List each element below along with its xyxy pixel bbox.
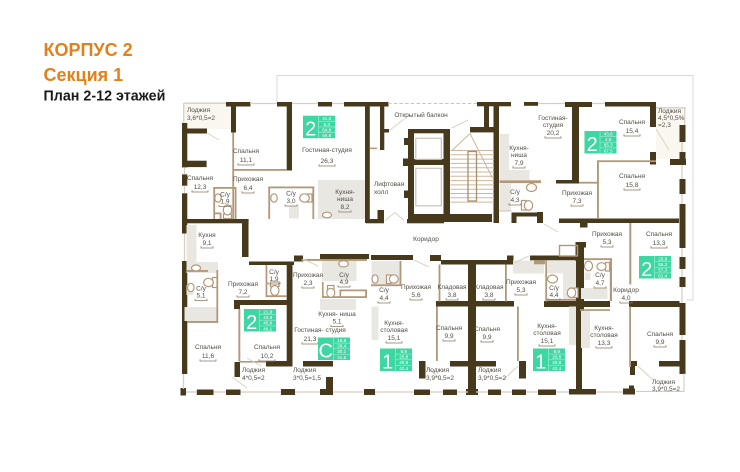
svg-text:Кладовая: Кладовая	[437, 284, 467, 291]
svg-text:1,9: 1,9	[220, 199, 229, 206]
svg-text:3,8: 3,8	[484, 292, 493, 299]
svg-text:3,8: 3,8	[447, 292, 456, 299]
svg-text:12,3: 12,3	[194, 184, 207, 191]
svg-text:31,5: 31,5	[337, 355, 346, 360]
svg-text:Гостиная- студия: Гостиная- студия	[294, 327, 346, 334]
svg-text:Спальня: Спальня	[233, 148, 260, 155]
svg-text:26,3: 26,3	[321, 158, 334, 165]
svg-text:5,1: 5,1	[332, 319, 341, 326]
svg-text:41,5: 41,5	[322, 116, 331, 121]
svg-text:Спальня: Спальня	[187, 175, 214, 182]
svg-text:Кухня-: Кухня-	[335, 189, 355, 196]
svg-text:С/у: С/у	[196, 286, 207, 293]
svg-text:Кухня- ниша: Кухня- ниша	[318, 311, 356, 318]
svg-text:7,9: 7,9	[514, 160, 523, 167]
svg-text:КОРПУС 2: КОРПУС 2	[44, 40, 133, 60]
svg-text:4,0: 4,0	[621, 295, 630, 302]
svg-text:С/у: С/у	[510, 189, 521, 196]
svg-text:С/у: С/у	[549, 285, 560, 292]
svg-text:Лоджия: Лоджия	[426, 367, 450, 374]
svg-text:9,9: 9,9	[400, 349, 407, 354]
svg-text:5,1: 5,1	[196, 293, 205, 300]
svg-text:43,6: 43,6	[604, 131, 613, 136]
svg-text:3,6*0,5=2: 3,6*0,5=2	[187, 115, 215, 122]
svg-text:Лифтовая: Лифтовая	[374, 181, 405, 188]
svg-text:Спальня: Спальня	[647, 331, 674, 338]
svg-text:Прихожая: Прихожая	[592, 231, 623, 238]
svg-text:20,8: 20,8	[399, 355, 408, 360]
svg-text:57,3: 57,3	[658, 268, 667, 273]
svg-text:5,3: 5,3	[602, 239, 611, 246]
svg-text:5,6: 5,6	[411, 292, 420, 299]
svg-text:Лоджия: Лоджия	[293, 367, 317, 374]
svg-text:С/у: С/у	[269, 269, 280, 276]
svg-text:4,5*0,5%: 4,5*0,5%	[658, 115, 685, 122]
svg-text:=2,3: =2,3	[658, 122, 671, 129]
svg-text:49,1: 49,1	[263, 326, 272, 331]
svg-text:11,6: 11,6	[202, 353, 215, 360]
svg-text:4,5: 4,5	[605, 137, 612, 142]
svg-text:Прихожая: Прихожая	[562, 190, 593, 197]
svg-text:21,3: 21,3	[304, 336, 317, 343]
svg-text:Прихожая: Прихожая	[293, 272, 324, 279]
svg-text:столовая: столовая	[590, 332, 618, 339]
svg-text:67,5: 67,5	[604, 148, 613, 153]
svg-text:Прихожая: Прихожая	[401, 284, 432, 291]
svg-text:16,9: 16,9	[337, 338, 346, 343]
svg-text:2: 2	[246, 312, 257, 334]
svg-text:7,2: 7,2	[238, 289, 247, 296]
svg-text:Коридор: Коридор	[413, 236, 439, 243]
svg-text:5,3: 5,3	[516, 287, 525, 294]
svg-text:1: 1	[382, 352, 393, 374]
svg-text:3*0,5=1,5: 3*0,5=1,5	[293, 375, 321, 382]
svg-text:8,2: 8,2	[340, 204, 349, 211]
svg-text:30,1: 30,1	[337, 349, 346, 354]
svg-text:студия: студия	[543, 122, 564, 129]
svg-text:21,8: 21,8	[263, 309, 272, 314]
svg-text:Открытый балкон: Открытый балкон	[394, 111, 448, 119]
svg-text:4,3: 4,3	[510, 197, 519, 204]
svg-text:9,9: 9,9	[553, 349, 560, 354]
svg-text:Спальня: Спальня	[436, 325, 463, 332]
svg-text:С/у: С/у	[220, 192, 231, 199]
svg-text:Спальня: Спальня	[619, 173, 646, 180]
svg-text:Кладовая: Кладовая	[474, 284, 504, 291]
svg-text:64,8: 64,8	[322, 127, 331, 132]
svg-text:Спальня: Спальня	[195, 344, 222, 351]
svg-text:65,3: 65,3	[604, 143, 613, 148]
svg-text:С: С	[318, 341, 332, 363]
svg-text:Спальня: Спальня	[254, 344, 281, 351]
svg-text:столовая: столовая	[380, 327, 408, 334]
svg-text:42,4: 42,4	[399, 366, 408, 371]
svg-text:40,8: 40,8	[552, 360, 561, 365]
svg-text:6,3: 6,3	[323, 122, 330, 127]
svg-text:40,8: 40,8	[399, 360, 408, 365]
svg-text:23,9: 23,9	[658, 256, 667, 261]
svg-text:11,1: 11,1	[240, 157, 253, 164]
svg-text:3,9*0,5=2: 3,9*0,5=2	[652, 386, 680, 393]
svg-text:Гостиная-студия: Гостиная-студия	[302, 147, 352, 154]
svg-text:9,9: 9,9	[482, 334, 491, 341]
svg-text:С/у: С/у	[286, 191, 297, 198]
svg-text:2: 2	[305, 119, 316, 141]
svg-text:Кухня-: Кухня-	[509, 145, 529, 152]
svg-text:42,4: 42,4	[552, 366, 561, 371]
svg-text:Лоджия: Лоджия	[658, 108, 682, 115]
svg-text:холл: холл	[374, 189, 388, 196]
svg-text:Спальня: Спальня	[474, 326, 501, 333]
svg-text:4,9: 4,9	[339, 279, 348, 286]
svg-text:Лоджия: Лоджия	[242, 367, 266, 374]
svg-text:План 2-12 этажей: План 2-12 этажей	[44, 89, 166, 105]
svg-text:Кухня: Кухня	[198, 232, 216, 239]
svg-text:10,2: 10,2	[261, 353, 274, 360]
svg-text:3,9*0,5=2: 3,9*0,5=2	[426, 375, 454, 382]
svg-text:9,9: 9,9	[655, 339, 664, 346]
svg-text:3,9*0,5=2: 3,9*0,5=2	[478, 375, 506, 382]
svg-text:4,7: 4,7	[595, 280, 604, 287]
svg-text:2: 2	[587, 134, 598, 156]
svg-text:3,0: 3,0	[286, 198, 295, 205]
svg-text:15,1: 15,1	[388, 335, 401, 342]
svg-text:20,8: 20,8	[552, 355, 561, 360]
svg-text:15,4: 15,4	[626, 128, 639, 135]
svg-text:С/у: С/у	[379, 287, 390, 294]
svg-text:С/у: С/у	[595, 272, 606, 279]
svg-text:С/у: С/у	[339, 272, 350, 279]
svg-text:4*0,5=2: 4*0,5=2	[242, 375, 265, 382]
svg-text:15,1: 15,1	[541, 338, 554, 345]
svg-text:Спальня: Спальня	[646, 231, 673, 238]
svg-text:1,9: 1,9	[269, 276, 278, 283]
svg-text:2,3: 2,3	[303, 280, 312, 287]
svg-text:20,2: 20,2	[547, 130, 560, 137]
svg-text:Прихожая: Прихожая	[233, 176, 264, 183]
svg-text:Прихожая: Прихожая	[228, 281, 259, 288]
svg-text:28,4: 28,4	[337, 344, 346, 349]
svg-text:Гостиная-: Гостиная-	[538, 115, 567, 122]
svg-text:4,4: 4,4	[549, 292, 558, 299]
svg-text:45,8: 45,8	[263, 321, 272, 326]
svg-text:4,4: 4,4	[379, 295, 388, 302]
svg-text:15,8: 15,8	[626, 182, 639, 189]
svg-text:66,8: 66,8	[322, 133, 331, 138]
svg-text:13,3: 13,3	[653, 240, 666, 247]
svg-text:Коридор: Коридор	[613, 287, 639, 294]
svg-text:6,4: 6,4	[243, 185, 252, 192]
svg-text:9,9: 9,9	[444, 333, 453, 340]
svg-text:43,8: 43,8	[263, 315, 272, 320]
svg-text:1: 1	[535, 352, 546, 374]
svg-text:Кухня-: Кухня-	[384, 320, 404, 327]
svg-text:Кухня-: Кухня-	[594, 325, 614, 332]
svg-text:55,3: 55,3	[658, 262, 667, 267]
svg-text:9,1: 9,1	[202, 240, 211, 247]
svg-text:2: 2	[641, 259, 652, 281]
svg-text:Лоджия: Лоджия	[652, 379, 676, 386]
svg-text:61,4: 61,4	[658, 273, 667, 278]
svg-text:Секция 1: Секция 1	[44, 65, 124, 85]
svg-text:7,3: 7,3	[572, 198, 581, 205]
svg-text:Лоджия: Лоджия	[187, 107, 211, 114]
svg-text:Кухня-: Кухня-	[537, 323, 557, 330]
svg-text:Спальня: Спальня	[619, 119, 646, 126]
svg-text:13,3: 13,3	[598, 340, 611, 347]
svg-text:столовая: столовая	[533, 330, 561, 337]
svg-text:ниша: ниша	[337, 196, 353, 203]
svg-text:ниша: ниша	[511, 152, 527, 159]
svg-text:Лоджия: Лоджия	[478, 367, 502, 374]
svg-text:Прихожая: Прихожая	[506, 279, 537, 286]
